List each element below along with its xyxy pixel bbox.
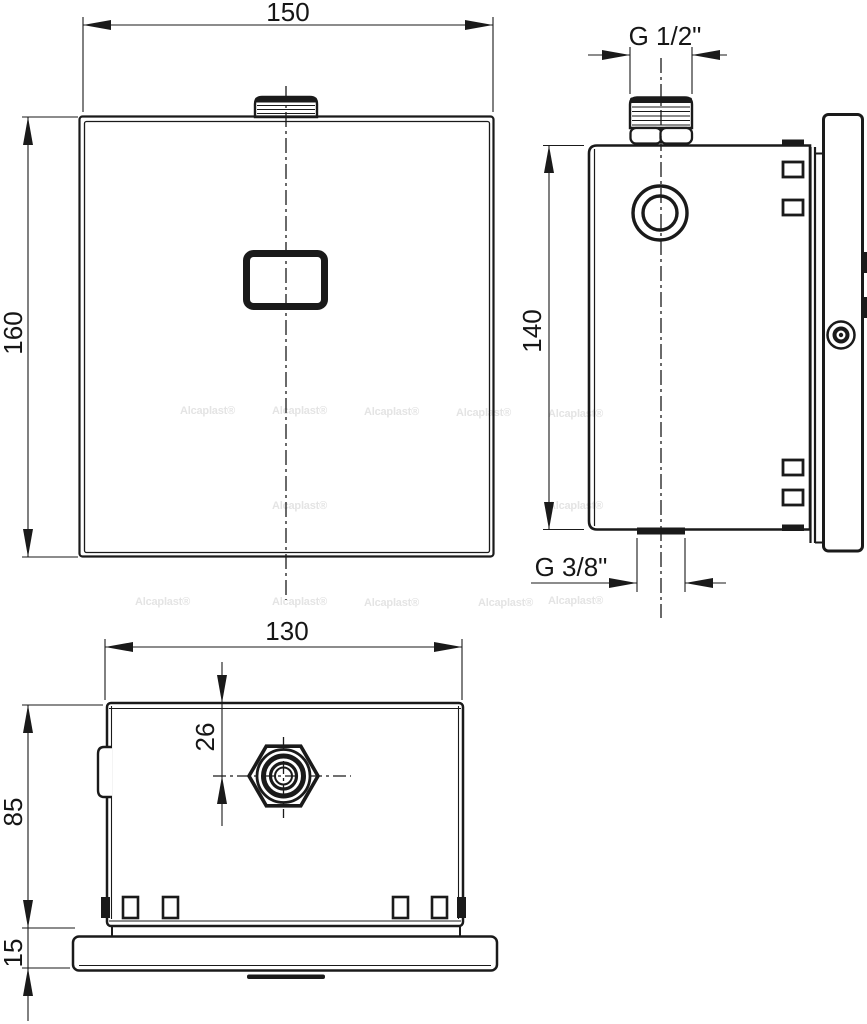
clip (783, 200, 803, 215)
mounting-strip (811, 147, 825, 543)
clip (123, 897, 138, 918)
hex-nut-bottom (213, 737, 351, 818)
arrow-down (217, 675, 227, 703)
arrow-up (217, 776, 227, 804)
arrow-left (83, 20, 111, 30)
dimension-bottom-width: 130 (105, 616, 462, 700)
body-outline (107, 703, 463, 926)
body-outline (589, 146, 810, 530)
clip (163, 897, 178, 918)
body-inner-lines (109, 706, 461, 921)
dimension-nut-offset: 26 (190, 662, 227, 826)
dim-label-130: 130 (265, 616, 308, 646)
dim-label-26: 26 (190, 723, 220, 752)
arrow-left (609, 578, 637, 588)
dim-label-160: 160 (0, 311, 28, 354)
plate-tab (861, 252, 867, 273)
side-bump (98, 747, 112, 797)
dim-label-140: 140 (517, 309, 547, 352)
arrow-top (23, 705, 33, 733)
dimension-side-height: 140 (517, 146, 584, 530)
front-view: 150 160 (0, 0, 494, 600)
bottom-view: 130 26 85 1 (0, 616, 497, 1021)
clip (432, 897, 447, 918)
sensor-eye (633, 186, 687, 240)
arrow-bottom (544, 502, 554, 530)
arrow-bottom (23, 900, 33, 928)
arrow-top (23, 117, 33, 145)
dim-label-g38: G 3/8" (535, 552, 608, 582)
arrow-right (692, 50, 720, 60)
edge-tab (457, 897, 466, 918)
arrow-up (23, 968, 33, 996)
dimension-bottom-depth: 85 (0, 705, 103, 928)
arrow-top (544, 146, 554, 174)
technical-drawing: 150 160 (0, 0, 867, 1024)
clip (783, 460, 803, 475)
drawing-canvas: Alcaplast® Alcaplast® Alcaplast® Alcapla… (0, 0, 867, 1024)
dim-label-15: 15 (0, 939, 28, 968)
arrow-right (685, 578, 713, 588)
dim-label-85: 85 (0, 798, 28, 827)
clip (393, 897, 408, 918)
clip (783, 162, 803, 177)
plate-tab (861, 297, 867, 318)
dimension-g12: G 1/2" (588, 21, 727, 94)
dim-label-g12: G 1/2" (629, 21, 702, 51)
arrow-right (434, 642, 462, 652)
arrow-left (602, 50, 630, 60)
clip (783, 490, 803, 505)
side-view: G 1/2" 140 G 3/8" (517, 21, 867, 618)
panel-inner-outline (85, 122, 490, 553)
arrow-bottom (23, 529, 33, 557)
base-plate-mark (247, 975, 325, 980)
dimension-front-width: 150 (83, 0, 493, 112)
dimension-g38: G 3/8" (531, 538, 726, 592)
dim-label-150: 150 (266, 0, 309, 27)
body-bottom-tab (782, 525, 804, 532)
dimension-front-height: 160 (0, 117, 78, 557)
arrow-right (465, 20, 493, 30)
edge-tab (101, 897, 110, 918)
dimension-base-height: 15 (0, 928, 70, 1021)
arrow-left (105, 642, 133, 652)
body-top-tab (782, 140, 804, 146)
